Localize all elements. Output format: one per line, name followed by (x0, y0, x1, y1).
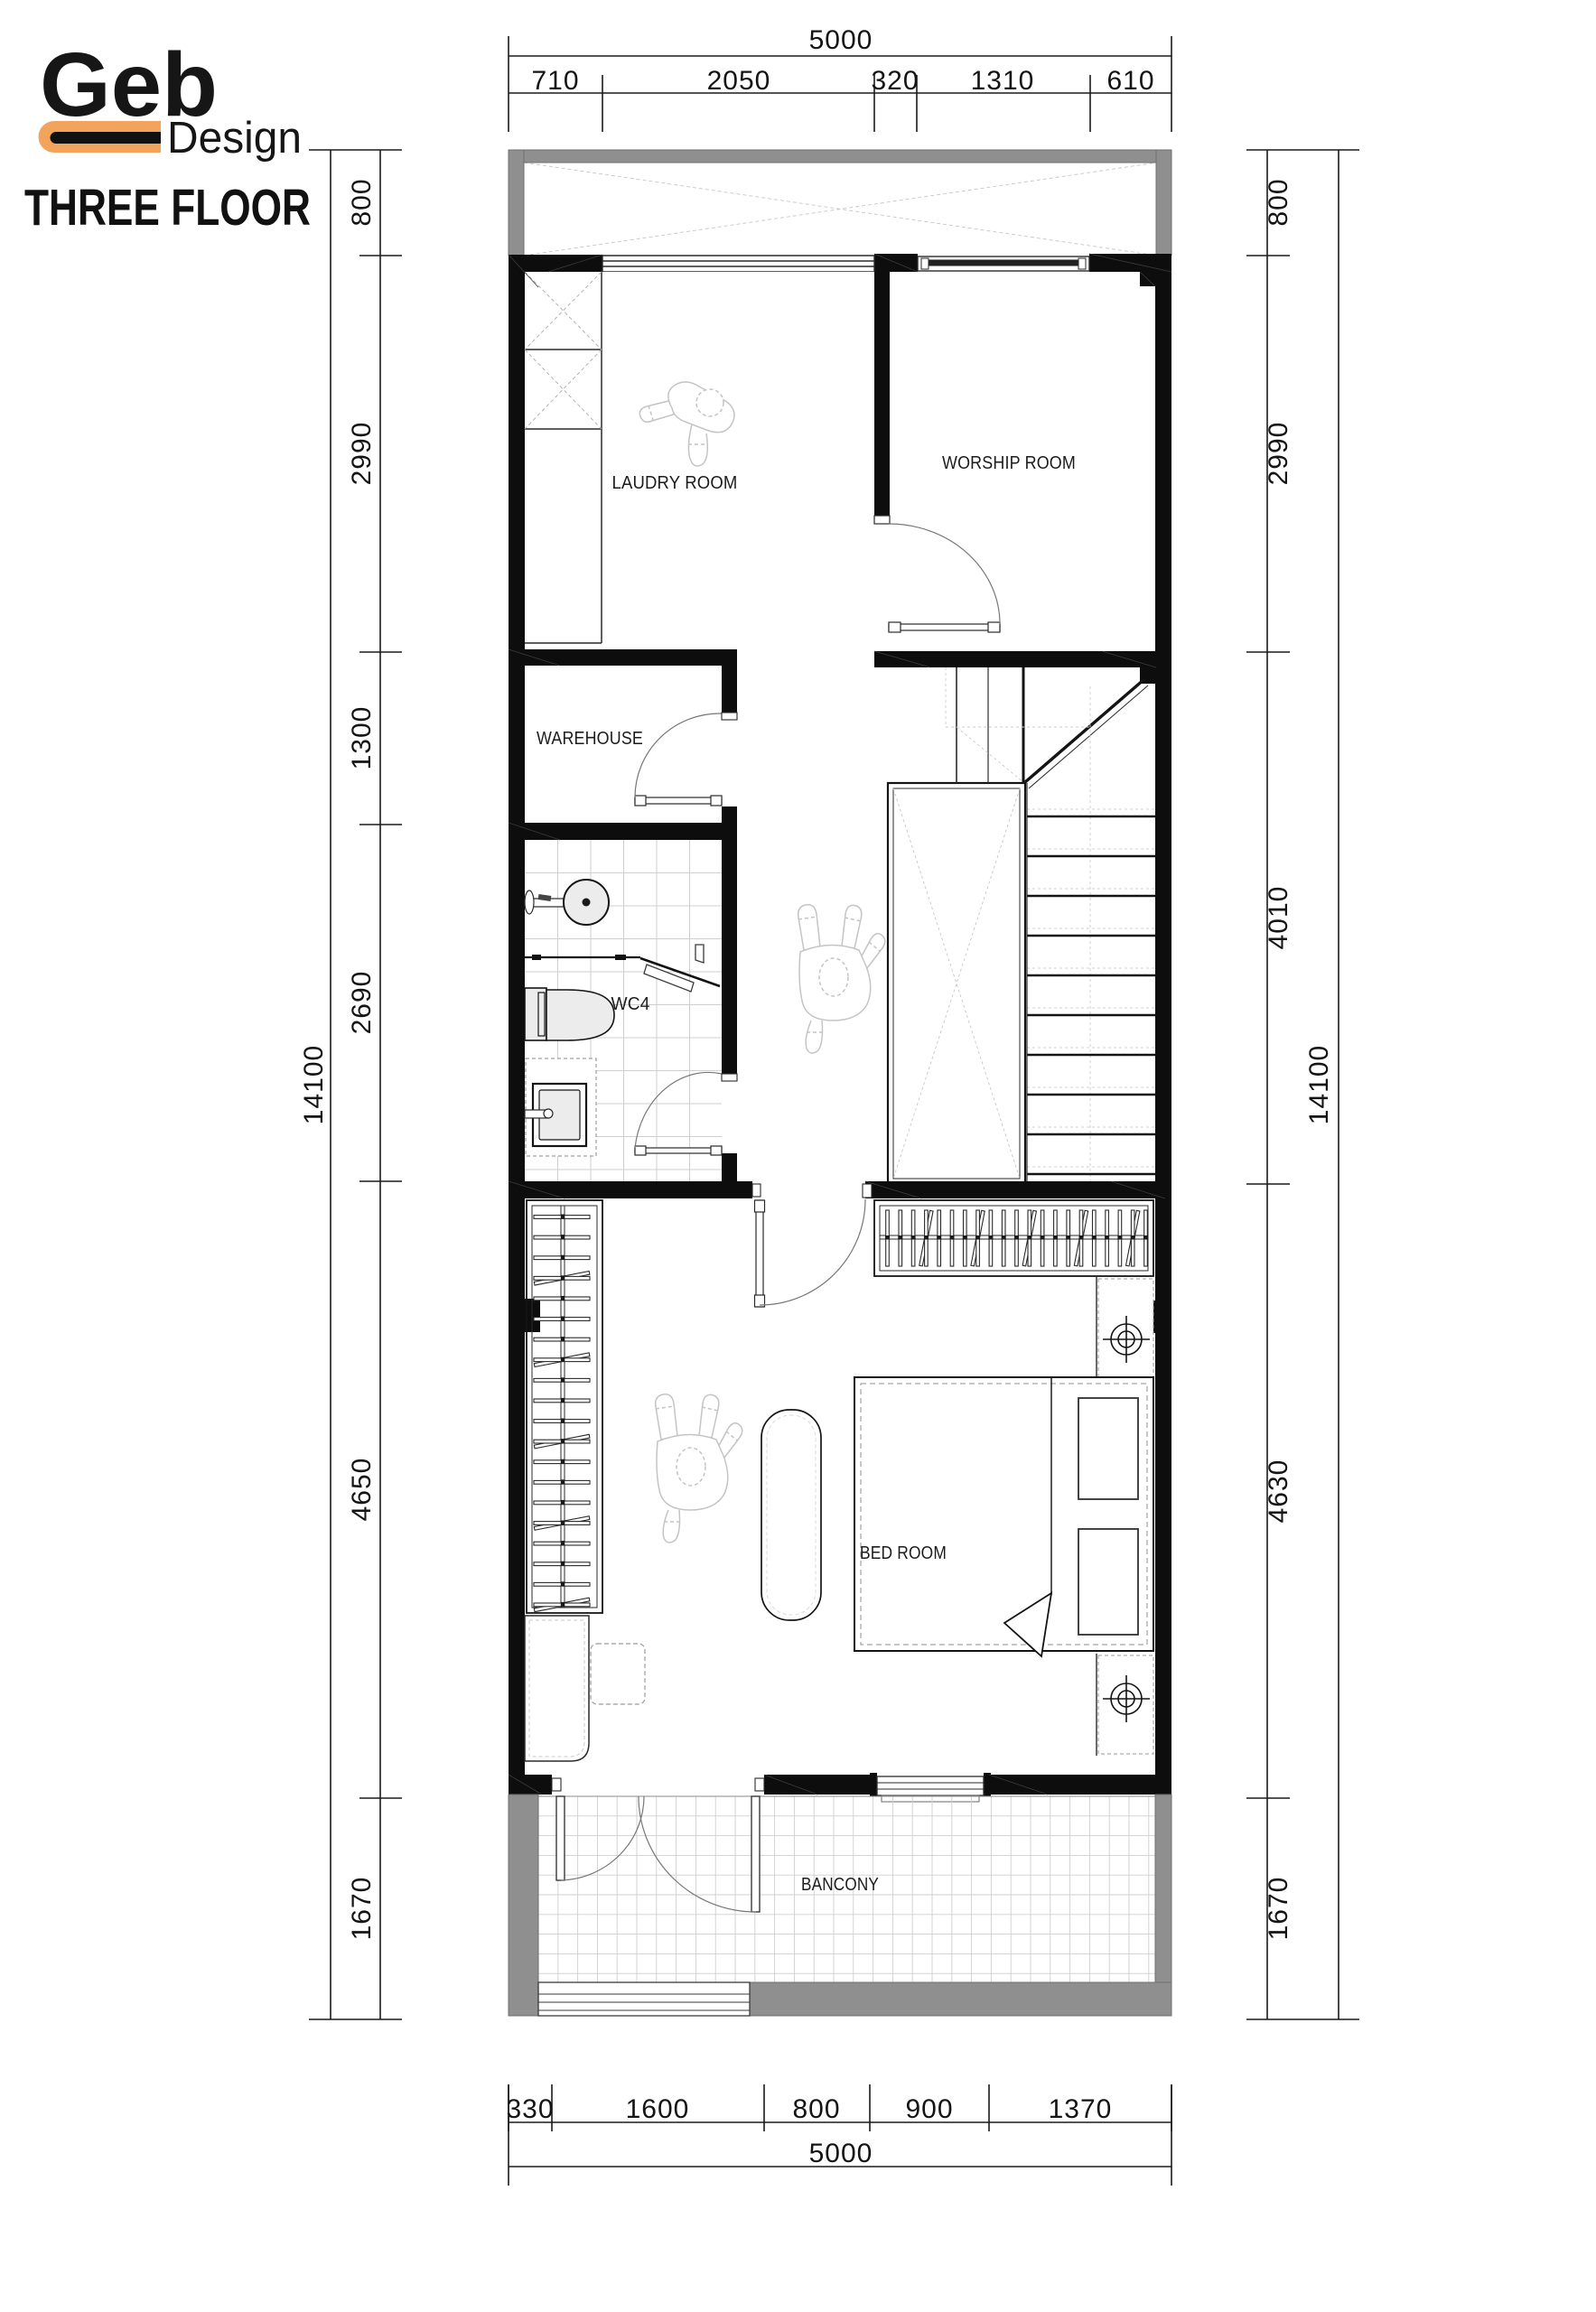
svg-text:800: 800 (347, 178, 377, 226)
svg-text:2990: 2990 (347, 422, 377, 486)
svg-text:320: 320 (871, 66, 919, 96)
svg-text:1370: 1370 (1049, 2094, 1113, 2124)
svg-text:1300: 1300 (347, 706, 377, 770)
svg-text:14100: 14100 (299, 1045, 329, 1124)
svg-text:5000: 5000 (809, 25, 873, 55)
svg-text:BED ROOM: BED ROOM (860, 1543, 947, 1563)
svg-text:4650: 4650 (347, 1458, 377, 1522)
svg-text:WAREHOUSE: WAREHOUSE (537, 729, 643, 749)
svg-text:4010: 4010 (1264, 886, 1293, 950)
svg-text:800: 800 (792, 2094, 840, 2124)
svg-text:2050: 2050 (707, 66, 771, 96)
svg-text:610: 610 (1106, 66, 1154, 96)
svg-text:BANCONY: BANCONY (801, 1875, 879, 1895)
svg-text:800: 800 (1264, 178, 1293, 226)
svg-text:2690: 2690 (347, 971, 377, 1035)
svg-text:330: 330 (506, 2094, 554, 2124)
svg-text:1600: 1600 (626, 2094, 690, 2124)
svg-text:WC4: WC4 (611, 994, 650, 1014)
svg-text:4630: 4630 (1264, 1459, 1293, 1524)
svg-text:14100: 14100 (1304, 1045, 1334, 1124)
svg-text:1670: 1670 (1264, 1877, 1293, 1941)
svg-text:5000: 5000 (809, 2139, 873, 2168)
svg-text:Design: Design (167, 114, 302, 163)
svg-text:WORSHIP ROOM: WORSHIP ROOM (942, 453, 1076, 473)
svg-text:900: 900 (905, 2094, 953, 2124)
svg-text:710: 710 (531, 66, 579, 96)
svg-text:1310: 1310 (971, 66, 1035, 96)
svg-text:2990: 2990 (1264, 422, 1293, 486)
svg-text:THREE FLOOR: THREE FLOOR (24, 179, 311, 237)
svg-text:1670: 1670 (347, 1877, 377, 1941)
svg-text:LAUDRY ROOM: LAUDRY ROOM (612, 473, 738, 493)
